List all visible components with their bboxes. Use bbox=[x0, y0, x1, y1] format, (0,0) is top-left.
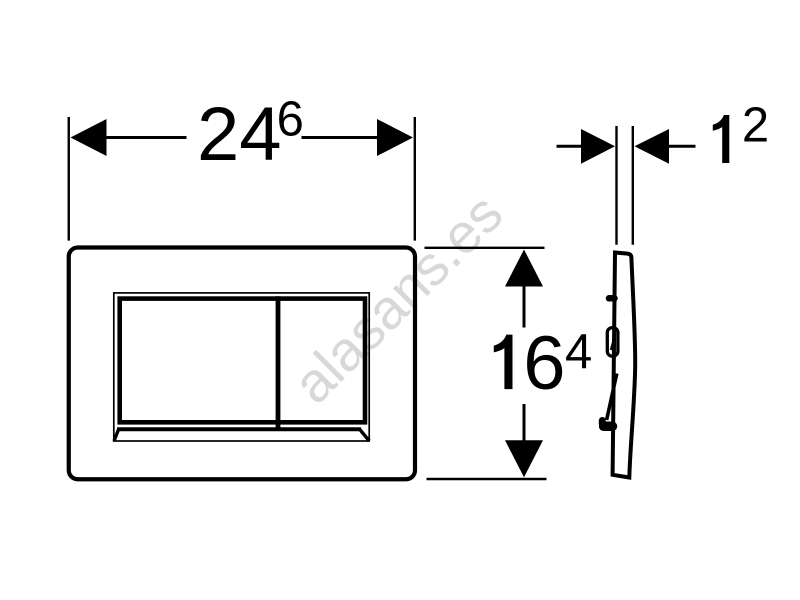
svg-text:24: 24 bbox=[197, 92, 282, 177]
svg-text:2: 2 bbox=[742, 98, 769, 152]
svg-text:4: 4 bbox=[565, 325, 592, 379]
svg-text:6: 6 bbox=[277, 93, 304, 147]
svg-text:6: 6 bbox=[523, 321, 565, 406]
